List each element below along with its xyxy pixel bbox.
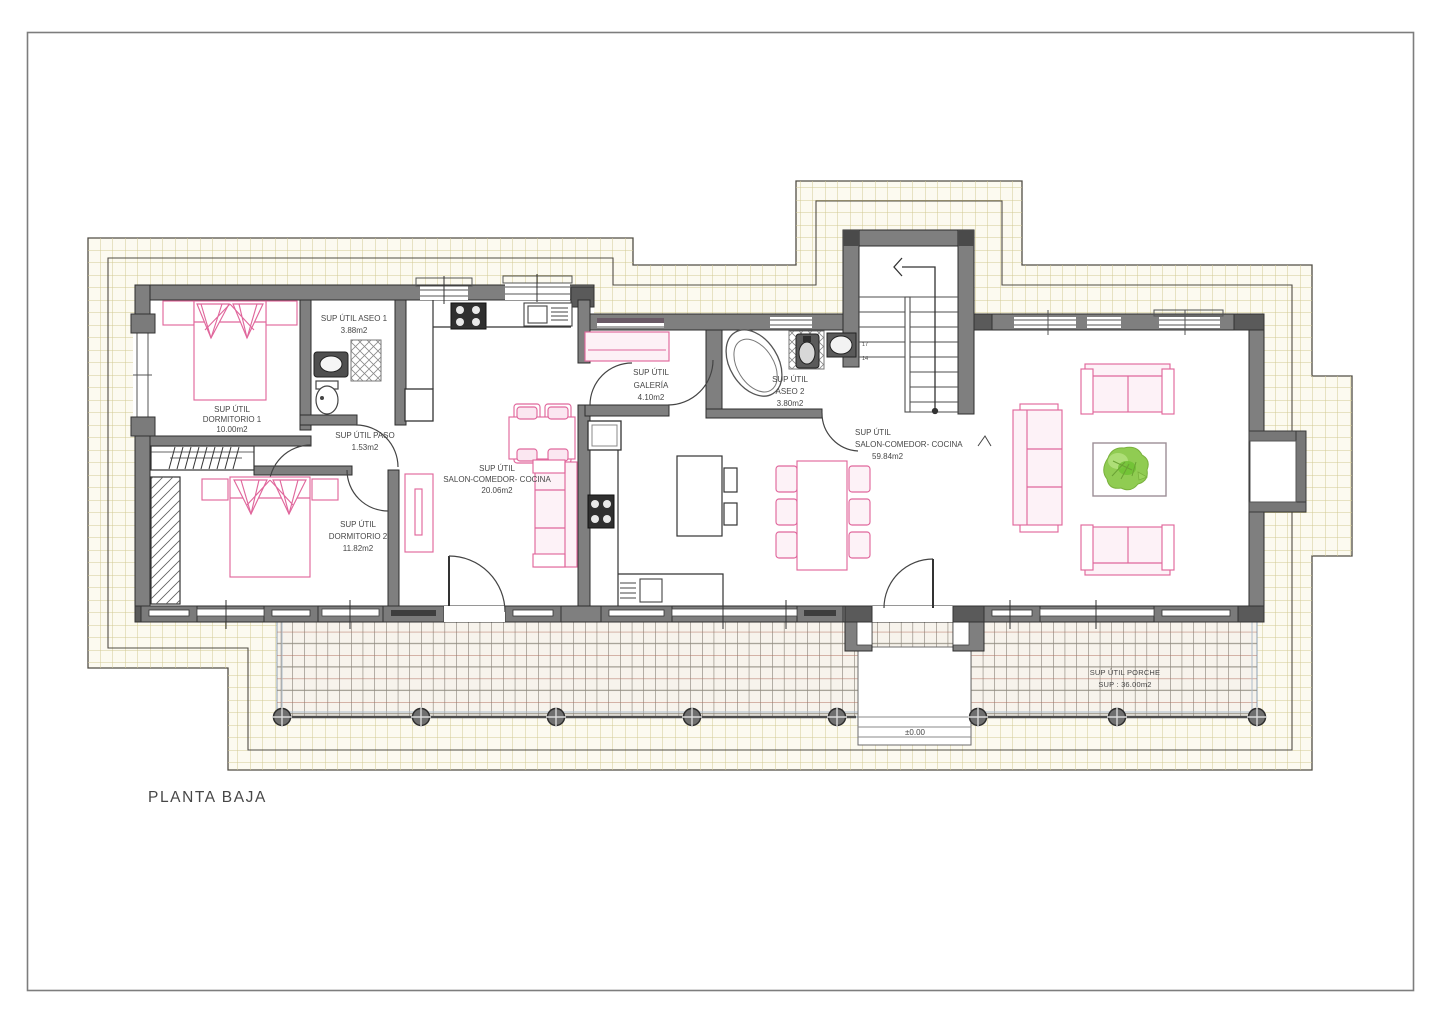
svg-text:20.06m2: 20.06m2 [481, 486, 513, 495]
svg-text:ASEO 2: ASEO 2 [776, 387, 805, 396]
svg-text:DORMITORIO 2: DORMITORIO 2 [329, 532, 388, 541]
svg-text:3.80m2: 3.80m2 [777, 399, 804, 408]
svg-text:4.10m2: 4.10m2 [638, 393, 665, 402]
svg-text:17: 17 [862, 342, 868, 348]
svg-text:14: 14 [862, 356, 868, 362]
svg-text:DORMITORIO 1: DORMITORIO 1 [203, 415, 262, 424]
svg-text:11.82m2: 11.82m2 [343, 544, 374, 553]
svg-text:SALON-COMEDOR- COCINA: SALON-COMEDOR- COCINA [443, 475, 551, 484]
svg-text:SUP ÚTIL: SUP ÚTIL [214, 405, 250, 414]
svg-text:SUP : 36.00m2: SUP : 36.00m2 [1098, 680, 1151, 689]
svg-text:SALON-COMEDOR- COCINA: SALON-COMEDOR- COCINA [855, 440, 963, 449]
svg-text:1.53m2: 1.53m2 [352, 443, 379, 452]
svg-text:SUP ÚTIL: SUP ÚTIL [772, 375, 808, 384]
svg-text:SUP ÚTIL ASEO 1: SUP ÚTIL ASEO 1 [321, 314, 388, 323]
svg-text:10.00m2: 10.00m2 [216, 425, 248, 434]
svg-text:SUP ÚTIL: SUP ÚTIL [633, 368, 669, 377]
svg-text:SUP ÚTIL PORCHE: SUP ÚTIL PORCHE [1090, 668, 1161, 677]
svg-text:59.84m2: 59.84m2 [872, 452, 904, 461]
svg-text:GALERÍA: GALERÍA [634, 381, 669, 390]
svg-text:SUP ÚTIL: SUP ÚTIL [479, 464, 515, 473]
svg-text:SUP ÚTIL: SUP ÚTIL [855, 428, 891, 437]
svg-text:SUP ÚTIL: SUP ÚTIL [340, 520, 376, 529]
svg-text:PLANTA BAJA: PLANTA BAJA [148, 789, 267, 806]
svg-text:SUP ÚTIL PASO: SUP ÚTIL PASO [335, 431, 394, 440]
svg-text:±0.00: ±0.00 [905, 728, 926, 737]
svg-text:3.88m2: 3.88m2 [341, 326, 368, 335]
